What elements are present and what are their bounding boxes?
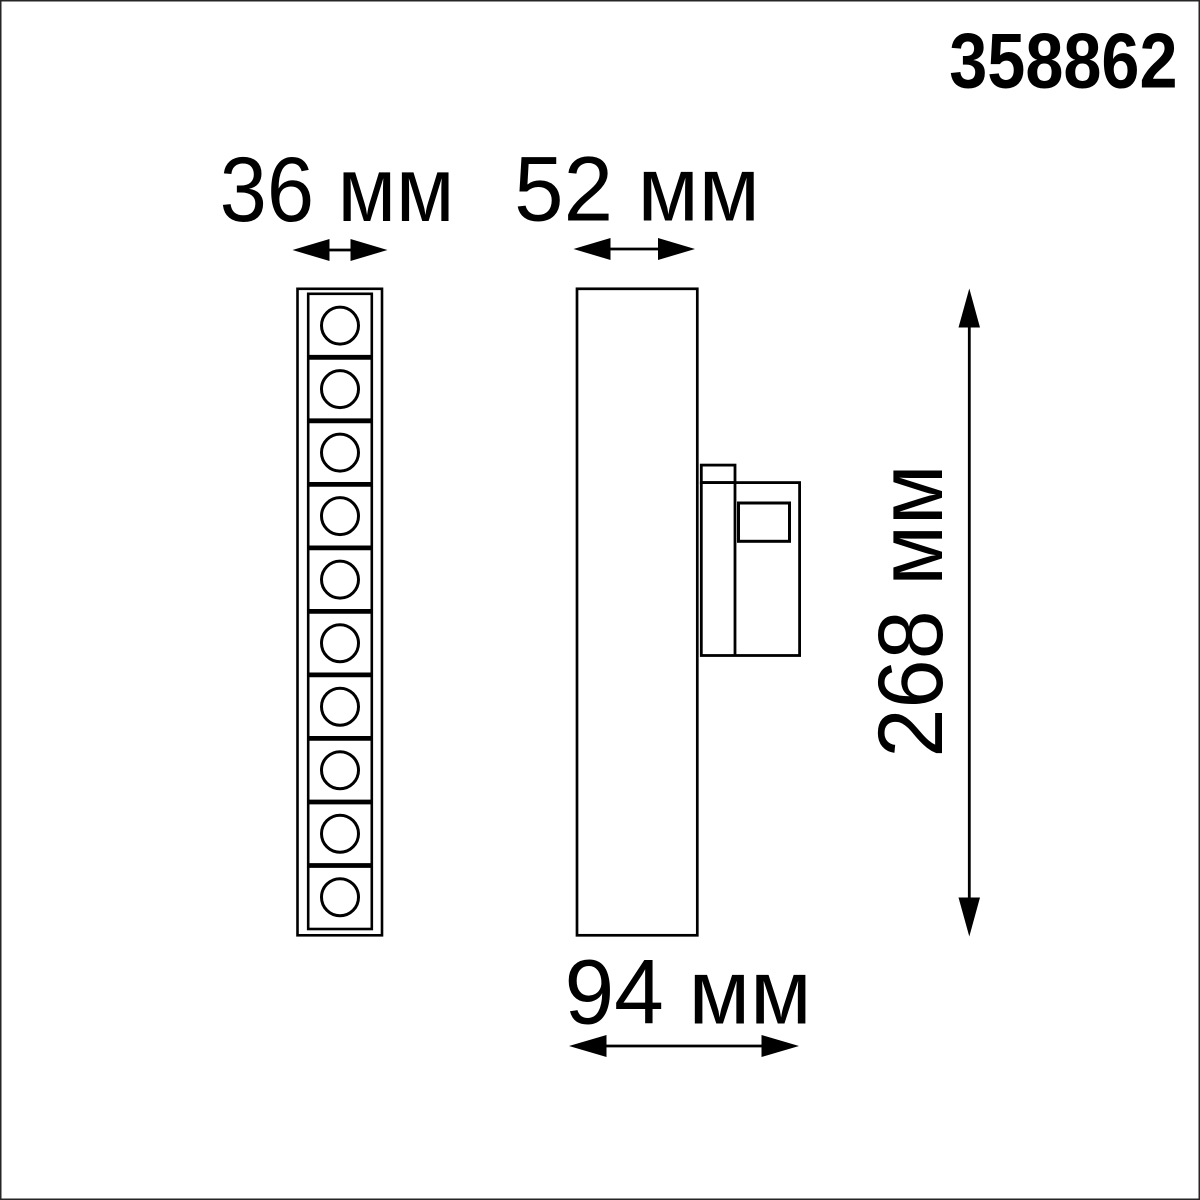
svg-text:268 мм: 268 мм bbox=[859, 464, 962, 757]
svg-text:358862: 358862 bbox=[949, 17, 1177, 104]
svg-text:36 мм: 36 мм bbox=[220, 138, 455, 241]
svg-text:94 мм: 94 мм bbox=[565, 941, 812, 1043]
svg-text:52 мм: 52 мм bbox=[514, 138, 760, 241]
